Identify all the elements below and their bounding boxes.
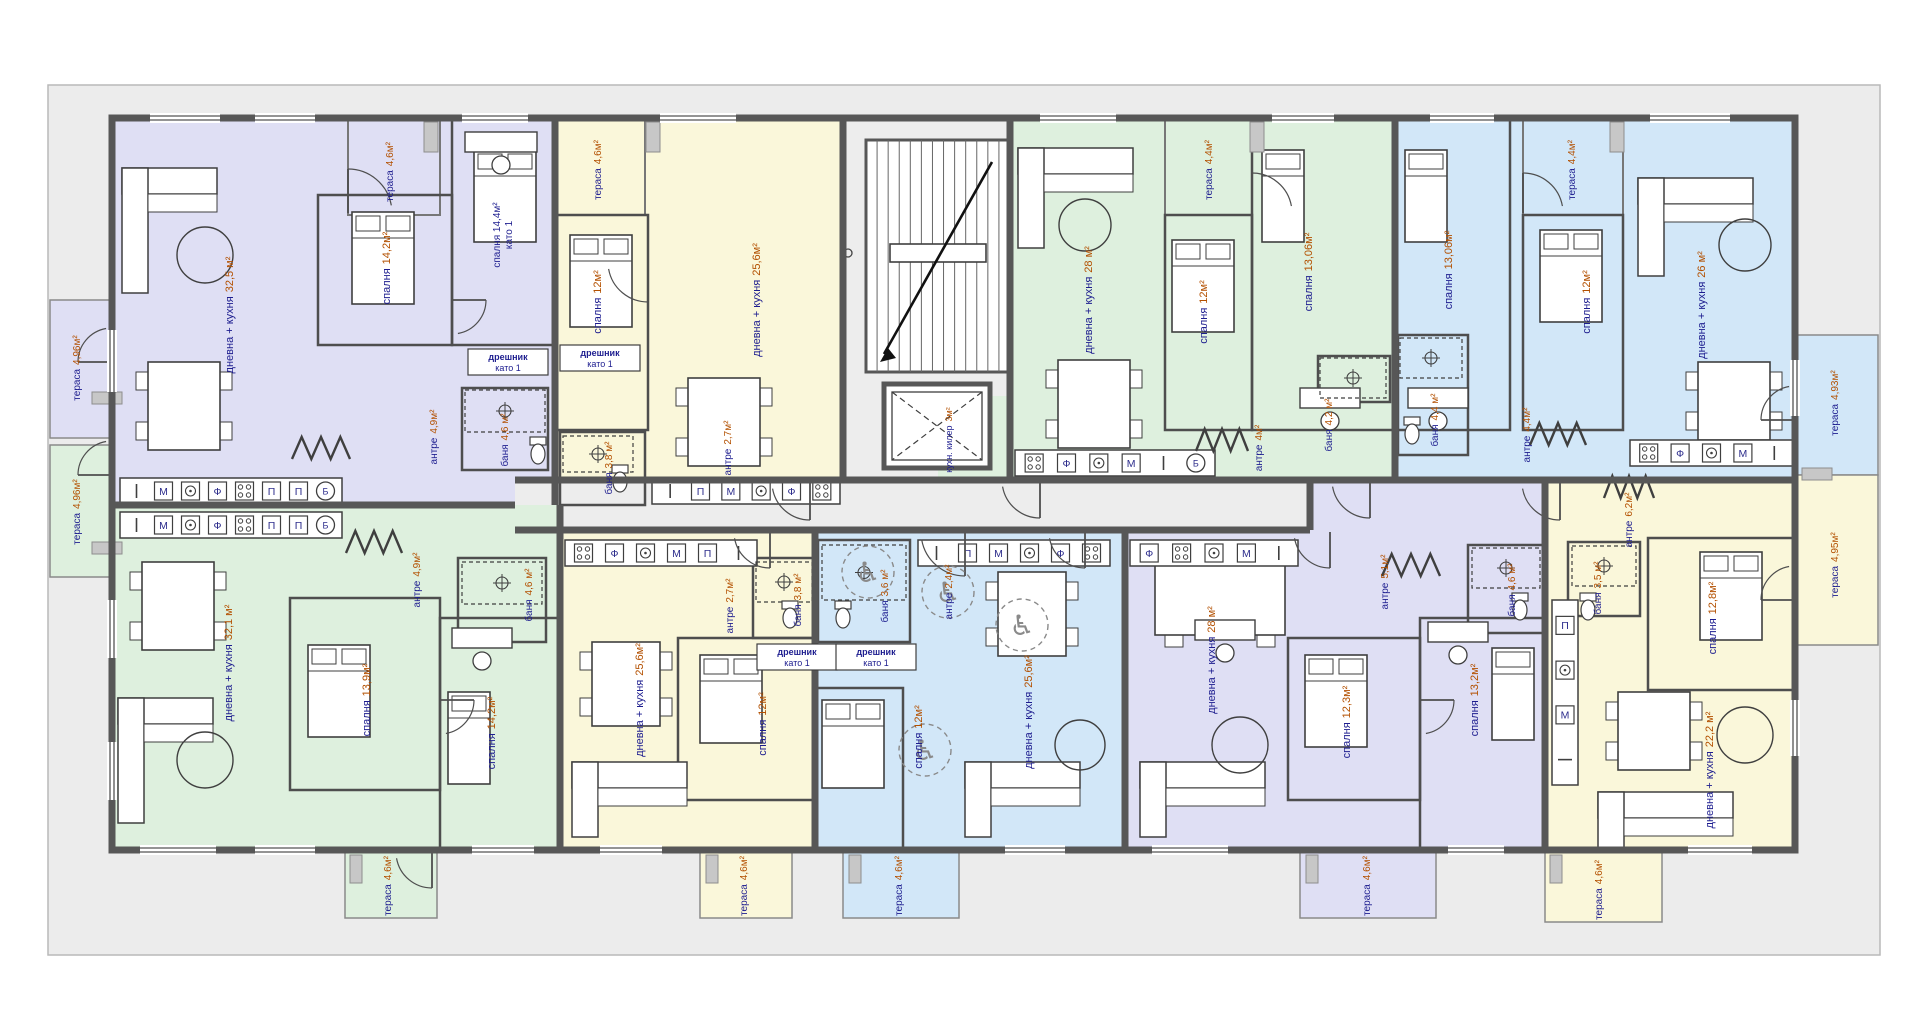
room-label: спалня13,06м² bbox=[1303, 232, 1315, 311]
bed bbox=[1405, 150, 1447, 242]
chair bbox=[660, 652, 672, 670]
room-label: дневна + кухня32,1 м² bbox=[223, 604, 235, 721]
bed bbox=[1262, 150, 1304, 242]
room-label: баня4,6 м² bbox=[499, 413, 511, 467]
toilet-bowl bbox=[836, 608, 850, 628]
room-label: антре4м² bbox=[1254, 424, 1265, 471]
window-gap bbox=[1005, 845, 1065, 855]
room-label: баня3,8 м² bbox=[792, 573, 804, 627]
appliance-letter: П bbox=[295, 520, 303, 532]
toilet-bowl bbox=[531, 444, 545, 464]
ac-unit bbox=[646, 122, 660, 152]
room-label: дневна + кухня25,6м² bbox=[1023, 655, 1035, 769]
counter-top bbox=[1015, 450, 1215, 476]
sink-drain bbox=[644, 552, 647, 555]
sink-drain bbox=[1564, 669, 1567, 672]
chair bbox=[1686, 412, 1698, 430]
sink-drain bbox=[189, 490, 192, 493]
chair bbox=[676, 388, 688, 406]
room-label: кухн. килер3м² bbox=[944, 407, 954, 472]
window bbox=[1152, 845, 1228, 855]
ac-unit bbox=[849, 855, 861, 883]
window-gap bbox=[150, 113, 220, 123]
chair bbox=[1066, 628, 1078, 646]
closet-band: дрешниккато 1 bbox=[757, 644, 837, 670]
window bbox=[255, 845, 315, 855]
chair bbox=[1690, 702, 1702, 720]
appliance-letter: Ф bbox=[214, 520, 222, 532]
wheelchair-glyph: ♿ bbox=[1009, 609, 1034, 642]
appliance-letter: М bbox=[1561, 710, 1570, 722]
appliance-letter: М bbox=[726, 486, 735, 498]
window bbox=[462, 113, 528, 123]
kitchen-counter: ФМБ bbox=[1015, 450, 1215, 476]
table-top bbox=[142, 562, 214, 650]
appliance-box bbox=[236, 516, 254, 534]
boiler-letter: Б bbox=[323, 487, 329, 497]
boiler-letter: Б bbox=[1193, 459, 1199, 469]
floor-plan-drawing: МФППБМФППБПМФФМБФМФМППМФФМПМ♿♿♿♿дрешникк… bbox=[0, 0, 1921, 1024]
desk-chair bbox=[1216, 644, 1234, 662]
dining-table bbox=[1686, 362, 1782, 440]
window-gap bbox=[1448, 845, 1504, 855]
appliance-letter: М bbox=[994, 548, 1003, 560]
chair bbox=[1130, 420, 1142, 438]
kitchen-counter: МФППБ bbox=[120, 478, 342, 504]
chair bbox=[1046, 420, 1058, 438]
bed bbox=[448, 692, 490, 784]
bed bbox=[1492, 648, 1534, 740]
closet-label: дрешник bbox=[580, 348, 620, 358]
kitchen-counter: ФМ bbox=[1130, 540, 1298, 566]
room-label: спалня12м² bbox=[592, 270, 604, 334]
desk-top bbox=[1428, 622, 1488, 642]
window bbox=[107, 330, 117, 392]
window-gap bbox=[1688, 845, 1752, 855]
pillow bbox=[1309, 659, 1333, 674]
dining-table bbox=[1606, 692, 1702, 770]
appliance-letter: Ф bbox=[1145, 548, 1153, 560]
appliance-letter: П bbox=[295, 486, 303, 498]
closet-label: дрешник bbox=[856, 647, 896, 657]
chair bbox=[1686, 372, 1698, 390]
window-gap bbox=[1152, 845, 1228, 855]
sofa-seat bbox=[148, 194, 217, 212]
bed bbox=[822, 700, 884, 788]
closet-label: като 1 bbox=[784, 658, 809, 668]
pillow bbox=[356, 216, 380, 231]
room-label: тераса4,6м² bbox=[593, 139, 604, 199]
pillow bbox=[1409, 154, 1443, 169]
chair bbox=[676, 438, 688, 456]
closet-band: дрешниккато 1 bbox=[468, 349, 548, 375]
window-gap bbox=[1790, 360, 1800, 416]
ac-unit bbox=[706, 855, 718, 883]
sofa-arm bbox=[122, 168, 148, 293]
window-gap bbox=[1040, 113, 1116, 123]
chair bbox=[220, 372, 232, 390]
table-top bbox=[1058, 360, 1130, 448]
closet-band: дрешниккато 1 bbox=[560, 345, 640, 371]
appliance-letter: М bbox=[1739, 448, 1748, 460]
sofa-arm bbox=[572, 762, 598, 837]
chair bbox=[580, 652, 592, 670]
appliance-letter: Ф bbox=[611, 548, 619, 560]
room-label: тераса4,6м² bbox=[1362, 855, 1373, 915]
chair bbox=[214, 572, 226, 590]
appliance-box bbox=[1025, 454, 1043, 472]
dining-table bbox=[136, 362, 232, 450]
kitchen-counter: ФМ bbox=[1630, 440, 1793, 466]
sofa-arm bbox=[118, 698, 144, 823]
table-top bbox=[592, 642, 660, 726]
window-gap bbox=[107, 742, 117, 800]
sink-drain bbox=[1213, 552, 1216, 555]
pillow bbox=[1266, 154, 1300, 169]
room-label: баня3,6 м² bbox=[879, 569, 891, 623]
window-gap bbox=[1790, 700, 1800, 756]
chair bbox=[130, 622, 142, 640]
chair bbox=[1770, 372, 1782, 390]
appliance-box bbox=[575, 544, 593, 562]
bed bbox=[700, 655, 762, 743]
kitchen-counter: ПМ bbox=[1552, 600, 1578, 785]
pillow bbox=[604, 239, 628, 254]
window-gap bbox=[140, 845, 216, 855]
appliance-letter: Ф bbox=[788, 486, 796, 498]
appliance-letter: П bbox=[268, 520, 276, 532]
room-label: тераса4,6м² bbox=[383, 855, 394, 915]
pillow bbox=[574, 239, 598, 254]
window bbox=[107, 742, 117, 800]
chair bbox=[986, 582, 998, 600]
chair bbox=[1606, 742, 1618, 760]
window bbox=[1650, 113, 1730, 123]
window bbox=[1790, 700, 1800, 756]
desk-top bbox=[465, 132, 537, 152]
ac-unit bbox=[92, 392, 122, 404]
pillow bbox=[826, 704, 850, 719]
pillow bbox=[452, 696, 486, 711]
window bbox=[1448, 845, 1504, 855]
window-gap bbox=[107, 330, 117, 392]
sink-drain bbox=[1098, 462, 1101, 465]
window-gap bbox=[1272, 113, 1334, 123]
desk-chair bbox=[1449, 646, 1467, 664]
room-label: дневна + кухня22,2 м² bbox=[1704, 711, 1716, 828]
sink-drain bbox=[760, 490, 763, 493]
kitchen-counter: ФМП bbox=[565, 540, 757, 566]
room-label: дневна + кухня25,6м² bbox=[751, 243, 763, 357]
chair bbox=[760, 388, 772, 406]
window bbox=[1790, 360, 1800, 416]
counter-top bbox=[120, 478, 342, 504]
counter-top bbox=[918, 540, 1110, 566]
chair bbox=[1130, 370, 1142, 388]
room-label: баня4,4 м² bbox=[1429, 393, 1441, 447]
sink-drain bbox=[189, 524, 192, 527]
ac-unit bbox=[1610, 122, 1624, 152]
pillow bbox=[856, 704, 880, 719]
kitchen-counter: ПМФ bbox=[918, 540, 1110, 566]
appliance-letter: Ф bbox=[1676, 448, 1684, 460]
kitchen-counter: МФППБ bbox=[120, 512, 342, 538]
pillow bbox=[386, 216, 410, 231]
sofa-seat bbox=[598, 788, 687, 806]
window-gap bbox=[1430, 113, 1494, 123]
room-label: тераса4,4м² bbox=[1204, 139, 1215, 199]
closet-label: като 1 bbox=[863, 658, 888, 668]
room-label: баня3,5 м² bbox=[1592, 561, 1604, 615]
window bbox=[255, 113, 315, 123]
pillow bbox=[1704, 556, 1728, 571]
window-gap bbox=[472, 845, 534, 855]
window-gap bbox=[600, 845, 662, 855]
room-label: спалня12м² bbox=[1198, 280, 1210, 344]
toilet bbox=[530, 437, 546, 464]
ac-unit bbox=[1250, 122, 1264, 152]
boiler-letter: Б bbox=[323, 521, 329, 531]
chair bbox=[1066, 582, 1078, 600]
pillow bbox=[342, 649, 366, 664]
ac-unit bbox=[1802, 468, 1832, 480]
counter-top bbox=[120, 512, 342, 538]
pillow bbox=[1496, 652, 1530, 667]
room-label: спалня13,06м² bbox=[1443, 230, 1455, 309]
room-label: спалня12м² bbox=[757, 692, 769, 756]
appliance-box bbox=[1173, 544, 1191, 562]
sofa-seat bbox=[1044, 174, 1133, 192]
closet-label: дрешник bbox=[488, 352, 528, 362]
appliance-box bbox=[236, 482, 254, 500]
chair bbox=[1770, 412, 1782, 430]
table-top bbox=[1698, 362, 1770, 440]
elevator bbox=[884, 384, 990, 468]
appliance-letter: М bbox=[159, 520, 168, 532]
chair bbox=[1606, 702, 1618, 720]
window bbox=[600, 845, 662, 855]
desk-chair bbox=[473, 652, 491, 670]
ac-unit bbox=[92, 542, 122, 554]
chair bbox=[1165, 635, 1183, 647]
pillow bbox=[734, 659, 758, 674]
window-gap bbox=[1650, 113, 1730, 123]
appliance-letter: П bbox=[268, 486, 276, 498]
ac-unit bbox=[424, 122, 438, 152]
room-label: баня3,8 м² bbox=[603, 441, 615, 495]
ac-unit bbox=[350, 855, 362, 883]
appliance-box bbox=[1640, 444, 1658, 462]
room-label: тераса4,6м² bbox=[739, 855, 750, 915]
closet-label: дрешник bbox=[777, 647, 817, 657]
room-label: дневна + кухня26 м² bbox=[1696, 251, 1708, 359]
window bbox=[472, 845, 534, 855]
staircase bbox=[844, 140, 1010, 372]
floor-plan-canvas: МФППБМФППБПМФФМБФМФМППМФФМПМ♿♿♿♿дрешникк… bbox=[0, 0, 1921, 1024]
terrace-left-bottom-green bbox=[50, 445, 112, 577]
ac-unit bbox=[1550, 855, 1562, 883]
toilet bbox=[1404, 417, 1420, 444]
chair bbox=[136, 372, 148, 390]
ac-unit bbox=[1306, 855, 1318, 883]
pillow bbox=[1574, 234, 1598, 249]
window bbox=[1005, 845, 1065, 855]
appliance-letter: М bbox=[1127, 458, 1136, 470]
counter-top bbox=[565, 540, 757, 566]
room-label: дневна + кухня28 м² bbox=[1206, 606, 1218, 714]
appliance-letter: П bbox=[697, 486, 705, 498]
dining-table bbox=[1046, 360, 1142, 448]
window bbox=[660, 113, 736, 123]
room-label: баня4,6 м² bbox=[1506, 563, 1518, 617]
pillow bbox=[1339, 659, 1363, 674]
appliance-letter: П bbox=[1561, 620, 1569, 632]
pillow bbox=[704, 659, 728, 674]
room-label: спалня12м² bbox=[913, 705, 925, 769]
chair bbox=[130, 572, 142, 590]
room-label: дневна + кухня25,6м² bbox=[634, 643, 646, 757]
closet-label: като 1 bbox=[495, 363, 520, 373]
window bbox=[140, 845, 216, 855]
room-label: спалня12м² bbox=[1581, 270, 1593, 334]
pillow bbox=[1176, 244, 1200, 259]
room-label: тераса4,6м² bbox=[894, 855, 905, 915]
desk-chair bbox=[492, 156, 510, 174]
window bbox=[150, 113, 220, 123]
toilet-bowl bbox=[1405, 424, 1419, 444]
toilet bbox=[835, 601, 851, 628]
closet-band: дрешниккато 1 bbox=[836, 644, 916, 670]
room-label: дневна + кухня32,5 м² bbox=[224, 256, 236, 373]
appliance-letter: М bbox=[1242, 548, 1251, 560]
chair bbox=[580, 698, 592, 716]
sofa-arm bbox=[1140, 762, 1166, 837]
window-gap bbox=[660, 113, 736, 123]
appliance-letter: Ф bbox=[1063, 458, 1071, 470]
window-gap bbox=[107, 600, 117, 658]
room-label: дневна + кухня28 м² bbox=[1083, 246, 1095, 354]
chair bbox=[1690, 742, 1702, 760]
chair bbox=[1257, 635, 1275, 647]
window-gap bbox=[255, 113, 315, 123]
sofa-arm bbox=[1638, 178, 1664, 276]
table-top bbox=[1618, 692, 1690, 770]
dining-table bbox=[580, 642, 672, 726]
bed bbox=[1305, 655, 1367, 747]
window bbox=[1272, 113, 1334, 123]
sofa-seat bbox=[1624, 818, 1733, 836]
window-gap bbox=[255, 845, 315, 855]
room-label: тераса4,6м² bbox=[385, 141, 396, 201]
room-label: баня4,6 м² bbox=[523, 568, 535, 622]
chair bbox=[660, 698, 672, 716]
sofa-seat bbox=[991, 788, 1080, 806]
sink-drain bbox=[1028, 552, 1031, 555]
window bbox=[1688, 845, 1752, 855]
appliance-letter: М bbox=[672, 548, 681, 560]
appliance-letter: М bbox=[159, 486, 168, 498]
appliance-letter: Ф bbox=[214, 486, 222, 498]
desk-top bbox=[452, 628, 512, 648]
window-gap bbox=[462, 113, 528, 123]
dining-table bbox=[130, 562, 226, 650]
chair bbox=[1046, 370, 1058, 388]
pillow bbox=[1206, 244, 1230, 259]
desk-top bbox=[1195, 620, 1255, 640]
pillow bbox=[1734, 556, 1758, 571]
sink-drain bbox=[1710, 452, 1713, 455]
pillow bbox=[508, 154, 532, 169]
appliance-box bbox=[813, 482, 831, 500]
sofa-seat bbox=[144, 724, 213, 742]
appliance-letter: П bbox=[704, 548, 712, 560]
chair bbox=[136, 422, 148, 440]
table-top bbox=[148, 362, 220, 450]
sofa-seat bbox=[1166, 788, 1265, 806]
sofa-arm bbox=[965, 762, 991, 837]
closet-label: като 1 bbox=[587, 359, 612, 369]
window bbox=[1040, 113, 1116, 123]
pillow bbox=[312, 649, 336, 664]
apartment-bottom-4-entry bbox=[1310, 480, 1545, 530]
chair bbox=[760, 438, 772, 456]
chair bbox=[220, 422, 232, 440]
room-label: тераса4,4м² bbox=[1567, 139, 1578, 199]
window bbox=[107, 600, 117, 658]
room-label: баня4,2 м² bbox=[1323, 398, 1335, 452]
pillow bbox=[1544, 234, 1568, 249]
sofa-arm bbox=[1598, 792, 1624, 850]
room-label: тераса4,6м² bbox=[1594, 859, 1605, 919]
wheelchair-glyph: ♿ bbox=[855, 556, 880, 589]
sofa-arm bbox=[1018, 148, 1044, 248]
window bbox=[1430, 113, 1494, 123]
